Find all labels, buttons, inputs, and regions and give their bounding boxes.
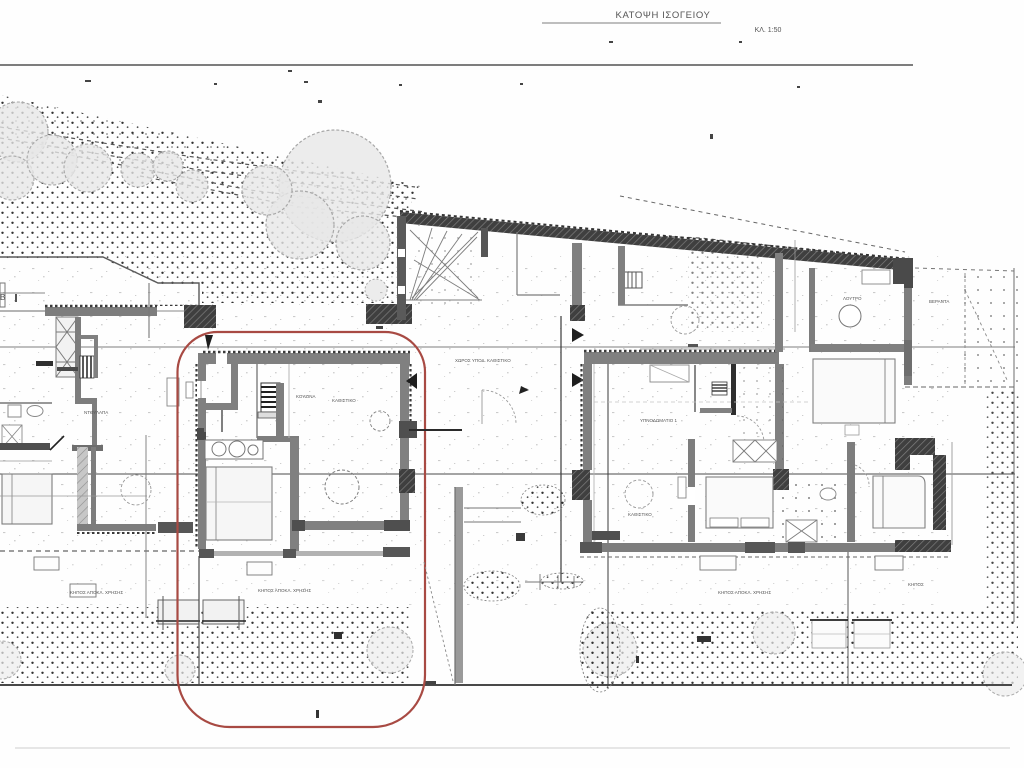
svg-text:ΚΗΠΟΣ ΑΠΟΚΛ. ΧΡΗΣΗΣ: ΚΗΠΟΣ ΑΠΟΚΛ. ΧΡΗΣΗΣ — [258, 588, 311, 593]
svg-text:ΚΑΤΟΨΗ ΙΣΟΓΕΙΟΥ: ΚΑΤΟΨΗ ΙΣΟΓΕΙΟΥ — [616, 10, 711, 21]
svg-text:ΚΗΠΟΣ ΑΠΟΚΛ. ΧΡΗΣΗΣ: ΚΗΠΟΣ ΑΠΟΚΛ. ΧΡΗΣΗΣ — [70, 590, 123, 595]
svg-text:B: B — [0, 293, 5, 302]
svg-text:ΚΗΠΟΣ ΑΠΟΚΛ. ΧΡΗΣΗΣ: ΚΗΠΟΣ ΑΠΟΚΛ. ΧΡΗΣΗΣ — [718, 590, 771, 595]
svg-text:ΧΩΡΟΣ ΥΠΟΔ. ΚΑΘΙΣΤΙΚΟ: ΧΩΡΟΣ ΥΠΟΔ. ΚΑΘΙΣΤΙΚΟ — [455, 358, 511, 363]
svg-text:ΚΛ. 1:50: ΚΛ. 1:50 — [755, 27, 782, 34]
svg-text:ΚΗΠΟΣ: ΚΗΠΟΣ — [908, 582, 924, 587]
svg-text:ΚΑΘΙΣΤΙΚΟ: ΚΑΘΙΣΤΙΚΟ — [628, 512, 652, 517]
svg-text:ΛΟΥΤΡΟ: ΛΟΥΤΡΟ — [843, 296, 862, 301]
svg-text:ΝΤΟΥΛΑΠΑ: ΝΤΟΥΛΑΠΑ — [84, 410, 108, 415]
svg-text:ΚΟΥΖΙΝΑ: ΚΟΥΖΙΝΑ — [296, 394, 315, 399]
svg-text:ΒΕΡΑΝΤΑ: ΒΕΡΑΝΤΑ — [929, 299, 949, 304]
svg-text:ΥΠΝΟΔΩΜΑΤΙΟ 1: ΥΠΝΟΔΩΜΑΤΙΟ 1 — [640, 418, 677, 423]
svg-text:ΚΑΘΙΣΤΙΚΟ: ΚΑΘΙΣΤΙΚΟ — [332, 398, 356, 403]
